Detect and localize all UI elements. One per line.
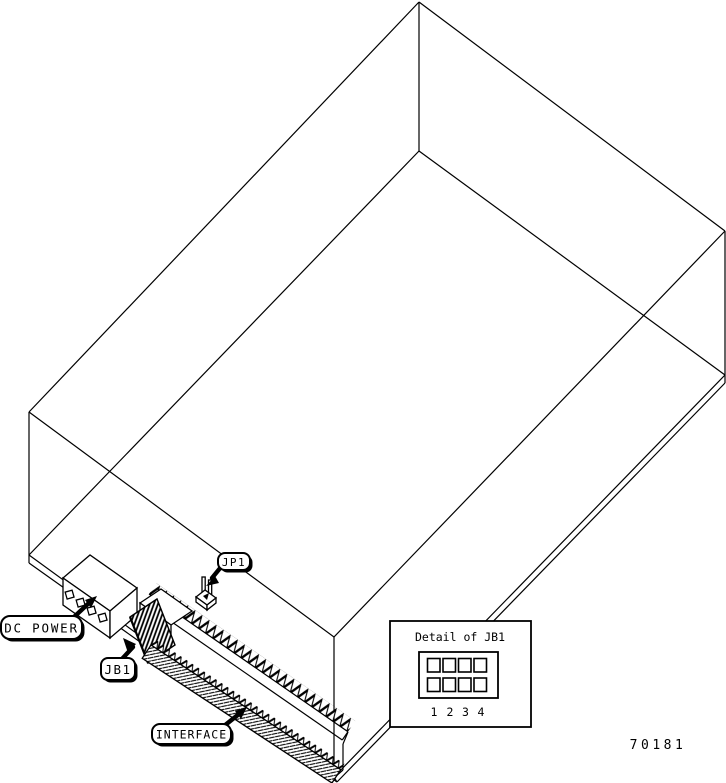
pin-number-1: 1 <box>431 705 438 719</box>
detail-box: Detail of JB1 1 2 3 4 <box>390 621 531 727</box>
jb1-detail-pin <box>428 678 441 692</box>
jp1-callout: JP1 <box>206 553 253 586</box>
pin-number-3: 3 <box>462 705 469 719</box>
diagram-page: Detail of JB1 1 2 3 4 DC POWER <box>0 0 726 783</box>
figure-number: 70181 <box>630 738 687 753</box>
jb1-detail-pin <box>459 678 472 692</box>
jb1-detail-pin <box>474 659 487 673</box>
jp1-label: JP1 <box>222 556 246 569</box>
jb1-detail-pin <box>428 659 441 673</box>
jb1-callout: JB1 <box>101 638 138 683</box>
interface-label: INTERFACE <box>156 728 227 742</box>
jb1-label: JB1 <box>104 662 131 677</box>
detail-pin-grid <box>419 652 498 698</box>
pin-number-4: 4 <box>478 705 485 719</box>
detail-box-title: Detail of JB1 <box>415 630 505 644</box>
jb1-detail-pin <box>443 678 456 692</box>
jb1-detail-pin <box>443 659 456 673</box>
jb1-detail-pin <box>459 659 472 673</box>
jb1-detail-pin <box>474 678 487 692</box>
dc-power-label: DC POWER <box>4 621 79 636</box>
pin-number-2: 2 <box>447 705 454 719</box>
